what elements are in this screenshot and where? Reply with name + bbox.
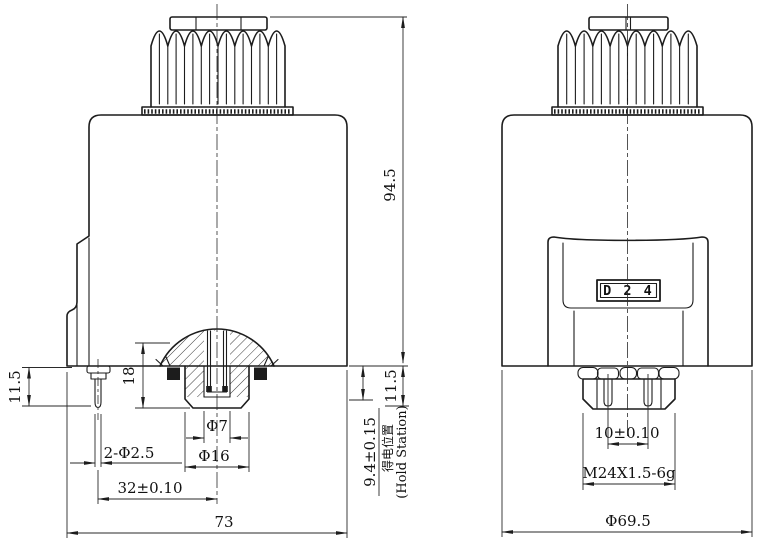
dim-total-height: 94.5	[381, 168, 399, 201]
cover-panel: D 2 4	[548, 237, 708, 366]
dim-pin-to-center: 32±0.10	[117, 479, 182, 497]
dim-hold-position: 9.4±0.15	[361, 417, 379, 487]
left-view	[67, 17, 347, 420]
dimensions: 94.5 11.5 9.4±0.15 得电位置 (Hold Station) 1…	[6, 17, 752, 538]
engineering-drawing: D 2 4	[0, 0, 784, 558]
dim-terminal-pins: 2-Φ2.5	[104, 444, 155, 462]
model-label: D 2 4	[603, 283, 654, 299]
dim-fitting-diameter: Φ16	[198, 447, 229, 465]
o-ring-left	[167, 368, 180, 381]
drawing-sheet: D 2 4	[0, 0, 784, 558]
dim-mounting-thread: M24X1.5-6g	[582, 464, 676, 482]
terminal-pin	[87, 359, 110, 420]
center-lines	[217, 4, 628, 504]
mounting-stem	[578, 368, 679, 410]
stem-flange	[578, 368, 679, 380]
model-label-plate: D 2 4	[597, 280, 660, 301]
adjustment-knob	[142, 17, 293, 115]
dim-pin-spacing: 10±0.10	[594, 424, 659, 442]
dim-body-diameter: Φ69.5	[605, 512, 651, 530]
dim-bore-depth: 18	[120, 366, 138, 385]
o-ring-right	[254, 368, 267, 381]
dim-hold-position-en: (Hold Station)	[395, 405, 410, 498]
dim-pin-length: 11.5	[6, 370, 24, 403]
dim-body-width: 73	[214, 513, 233, 531]
dim-hold-position-cn: 得电位置	[380, 424, 395, 472]
right-view: D 2 4	[502, 17, 752, 409]
dim-release-position: 11.5	[382, 369, 400, 402]
body-left	[67, 115, 347, 366]
